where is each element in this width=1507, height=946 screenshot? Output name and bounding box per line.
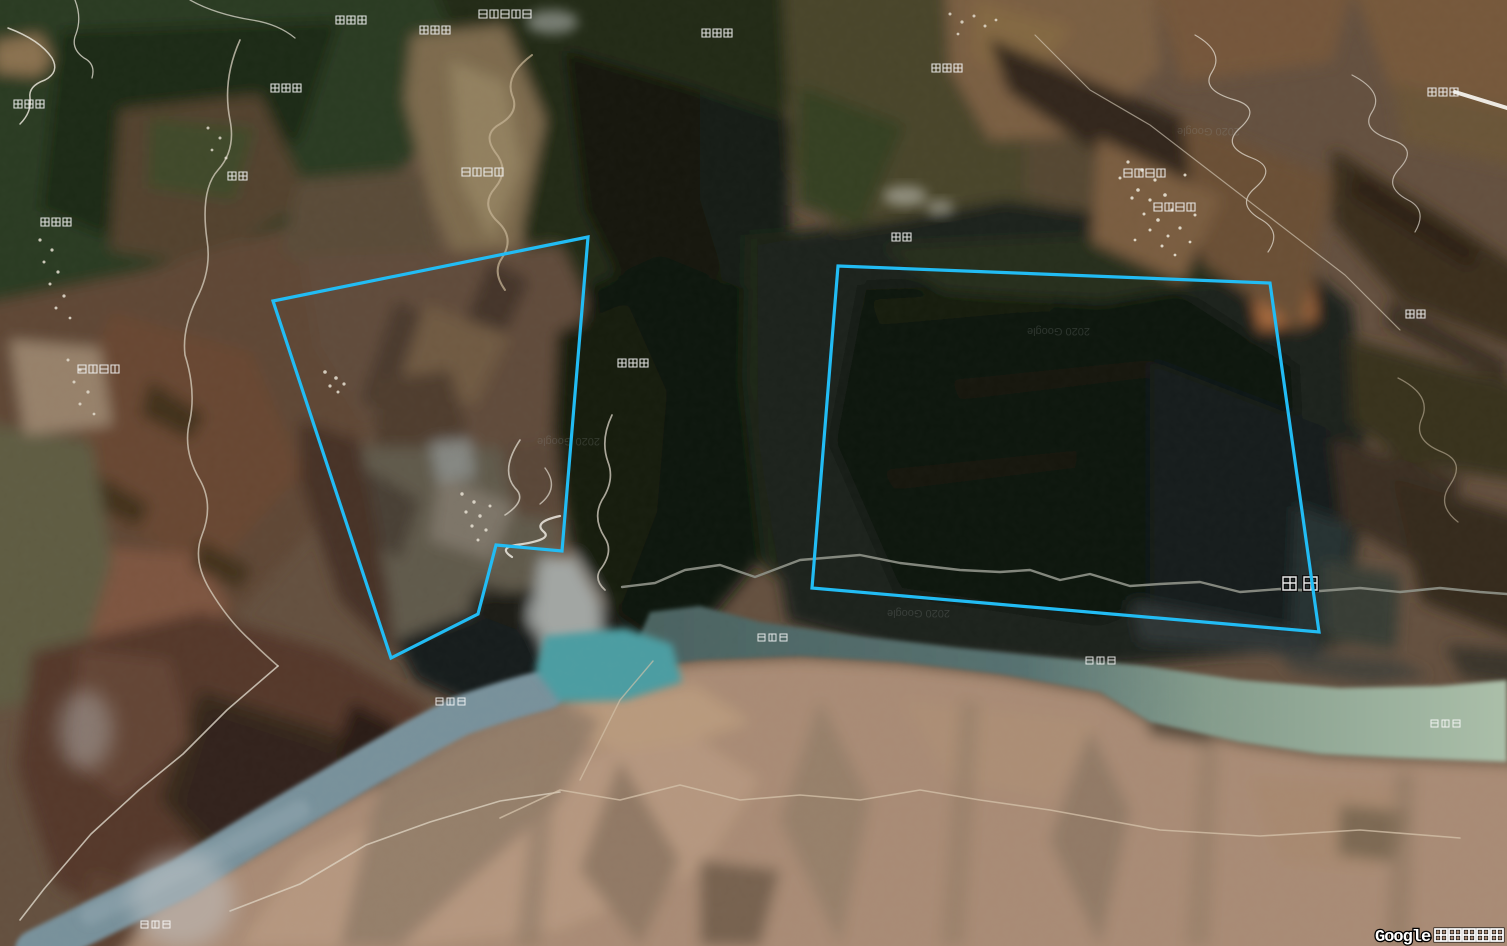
svg-text:2020 Google: 2020 Google xyxy=(887,607,950,619)
svg-text:2020 Google: 2020 Google xyxy=(1177,125,1240,137)
svg-text:Google: Google xyxy=(1375,928,1431,946)
svg-text:2020 Google: 2020 Google xyxy=(1027,325,1090,337)
svg-text:2020 Google: 2020 Google xyxy=(537,435,600,447)
